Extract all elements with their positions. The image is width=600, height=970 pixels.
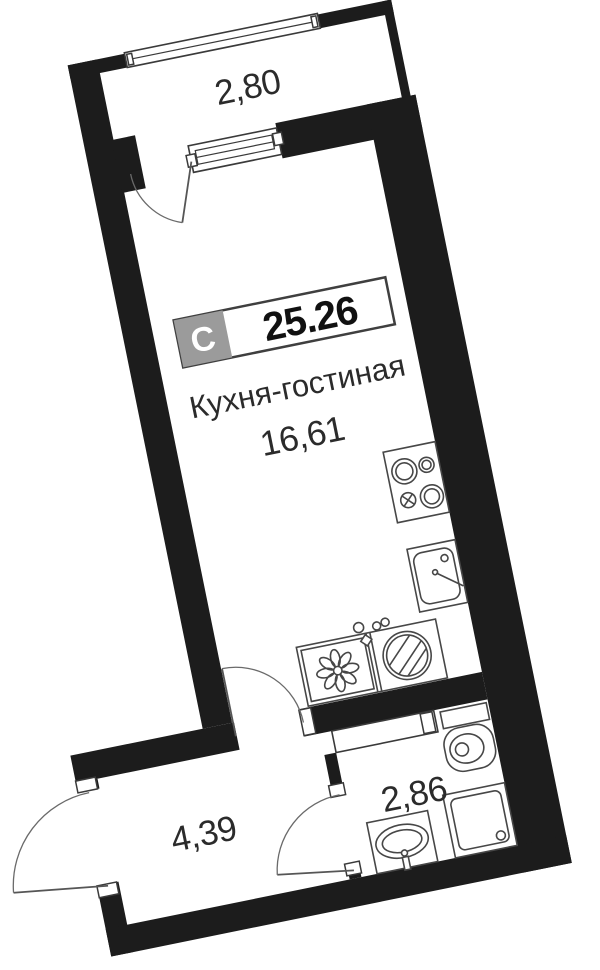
unit-type-badge: С 25.26 [174,277,395,367]
balcony-area-label: 2,80 [211,62,284,113]
kitchen-living-area-label: 16,61 [257,409,348,464]
balcony-window-icon [124,14,320,68]
bathroom-door-icon [262,783,362,890]
floor-plan: 2,80 С 25.26 Кухня-гостиная 16,61 4,39 2… [0,0,600,970]
floor-plan-canvas: 2,80 С 25.26 Кухня-гостиная 16,61 4,39 2… [0,0,600,970]
balcony-door-window-icon [184,127,285,173]
bathroom-area-label: 2,86 [378,769,451,820]
total-area-value: 25.26 [259,288,361,350]
shower-icon [443,783,517,858]
entry-door-icon [0,777,119,914]
toilet-icon [437,703,499,775]
hallway-area-label: 4,39 [167,808,240,859]
